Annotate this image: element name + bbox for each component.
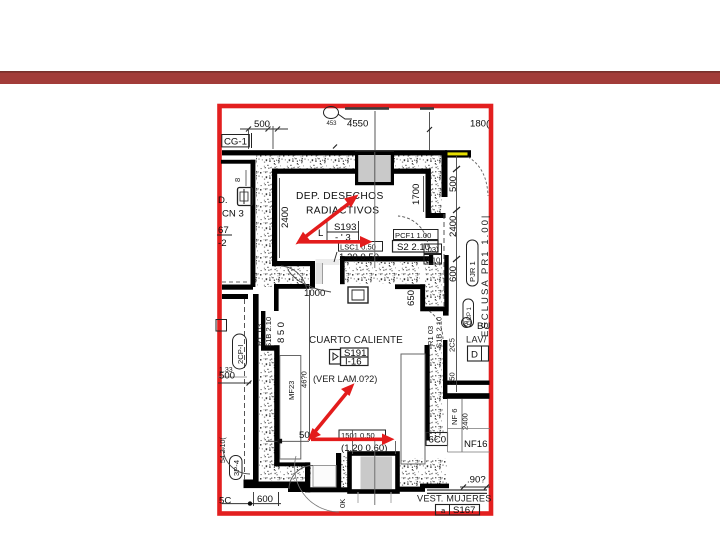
svg-text:500: 500	[219, 371, 235, 382]
svg-text:4550: 4550	[347, 119, 368, 130]
svg-text:L: L	[318, 228, 324, 239]
svg-text:CUARTO CALIENTE: CUARTO CALIENTE	[309, 335, 403, 346]
svg-text:.03): .03)	[426, 245, 440, 254]
svg-text:ESCLUSA PR1 1.00|: ESCLUSA PR1 1.00|	[480, 214, 491, 337]
svg-text:2C5: 2C5	[448, 338, 457, 352]
svg-text:2400: 2400	[448, 216, 459, 237]
svg-text:2400: 2400	[280, 207, 291, 228]
svg-text:B: B	[464, 321, 468, 328]
svg-text:LSC1 0.50: LSC1 0.50	[340, 243, 376, 252]
svg-text:D.: D.	[218, 195, 228, 206]
svg-text:D: D	[471, 350, 478, 361]
svg-text:NF 6: NF 6	[450, 409, 459, 425]
svg-text:1700: 1700	[411, 184, 422, 205]
svg-text:S1B 2.10: S1B 2.10	[435, 317, 444, 348]
svg-text:250: 250	[448, 372, 457, 385]
svg-text:5C: 5C	[219, 496, 231, 507]
svg-text:650: 650	[406, 290, 417, 306]
svg-text:453: 453	[327, 121, 338, 127]
svg-text:1.20 0.50.: 1.20 0.50.	[339, 252, 382, 263]
svg-text:DEP. DESECHOS: DEP. DESECHOS	[296, 191, 384, 202]
svg-text:46?0: 46?0	[300, 371, 309, 388]
svg-text:500: 500	[448, 176, 459, 192]
svg-text:R1 .03: R1 .03	[255, 324, 264, 346]
svg-text:VEST. MUJERES: VEST. MUJERES	[417, 494, 492, 504]
svg-text:I-16: I-16	[345, 357, 362, 368]
svg-text:(VER LAM.0?2): (VER LAM.0?2)	[313, 374, 377, 384]
svg-text:PJR 1: PJR 1	[468, 261, 477, 282]
svg-text:S1B 2.10: S1B 2.10	[264, 317, 273, 348]
svg-text:BU: BU	[477, 321, 490, 332]
svg-text:180(: 180(	[470, 119, 490, 130]
svg-text:0K: 0K	[338, 499, 347, 508]
svg-text:8: 8	[233, 178, 242, 182]
svg-text:(1.20 0.60): (1.20 0.60)	[341, 443, 387, 454]
svg-text:6C0: 6C0	[429, 435, 447, 446]
svg-text:600: 600	[448, 266, 459, 282]
svg-text:67: 67	[218, 225, 229, 236]
svg-text:MF23: MF23	[287, 381, 296, 400]
svg-text:CG-1: CG-1	[224, 137, 247, 148]
svg-text:.90?: .90?	[467, 475, 486, 486]
svg-text:2CP-I: 2CP-I	[236, 345, 245, 364]
svg-text:CN 3: CN 3	[222, 209, 244, 220]
svg-text:-2: -2	[218, 238, 227, 249]
svg-text:850: 850	[276, 319, 287, 343]
svg-text:NF16: NF16	[464, 439, 487, 450]
svg-text:500: 500	[254, 119, 270, 130]
svg-text:LAV/: LAV/	[466, 335, 487, 345]
svg-text:S167: S167	[453, 505, 475, 516]
svg-text:S193: S193	[334, 222, 356, 233]
svg-text:2.10: 2.10	[426, 256, 441, 265]
